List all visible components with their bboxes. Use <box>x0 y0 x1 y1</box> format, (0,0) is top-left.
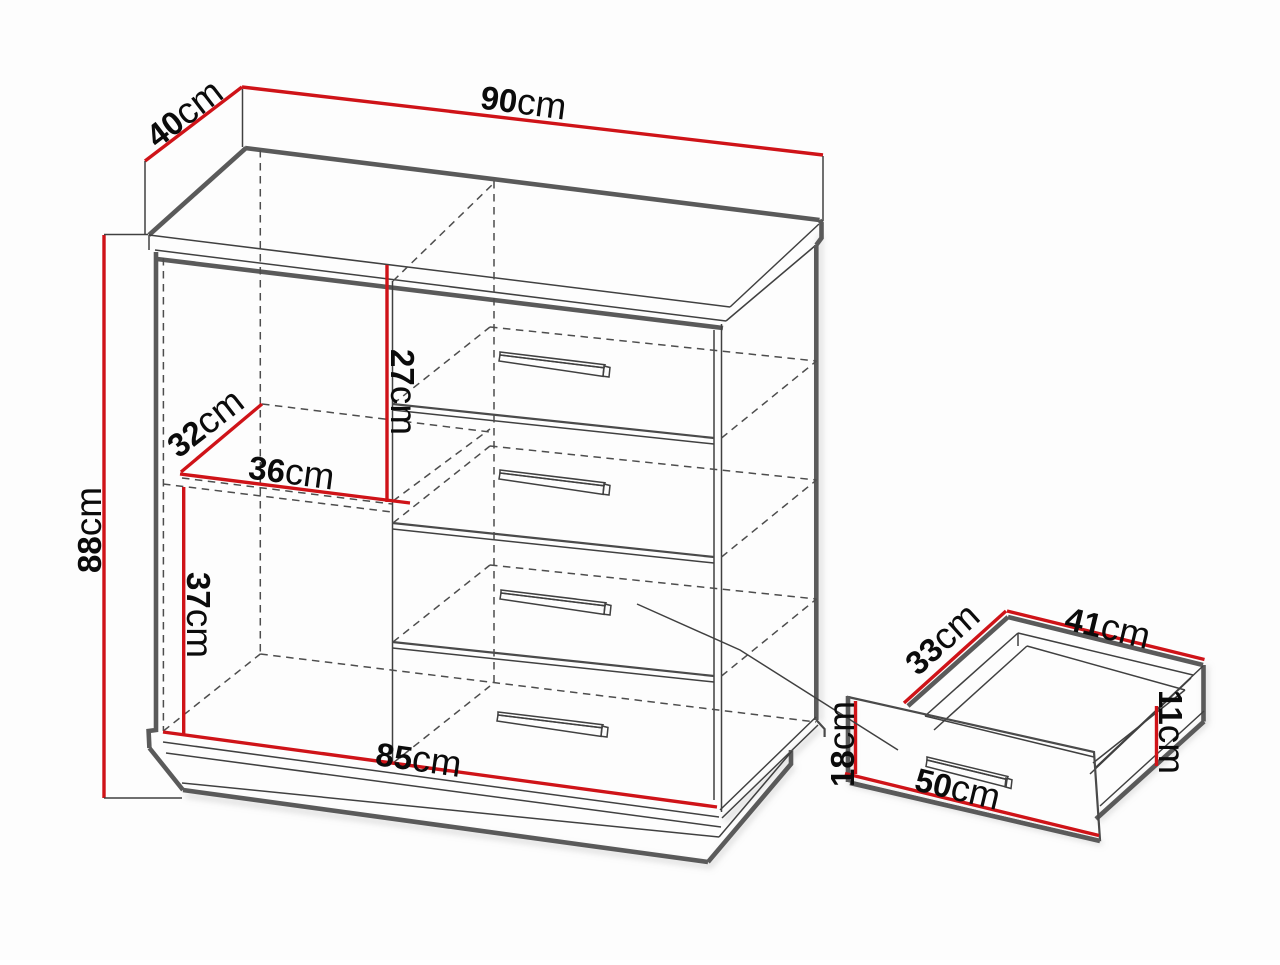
svg-text:88cm: 88cm <box>68 487 109 573</box>
svg-text:37cm: 37cm <box>179 572 220 658</box>
svg-text:27cm: 27cm <box>383 349 424 435</box>
svg-text:11cm: 11cm <box>1151 690 1192 774</box>
svg-text:18cm: 18cm <box>821 701 862 787</box>
